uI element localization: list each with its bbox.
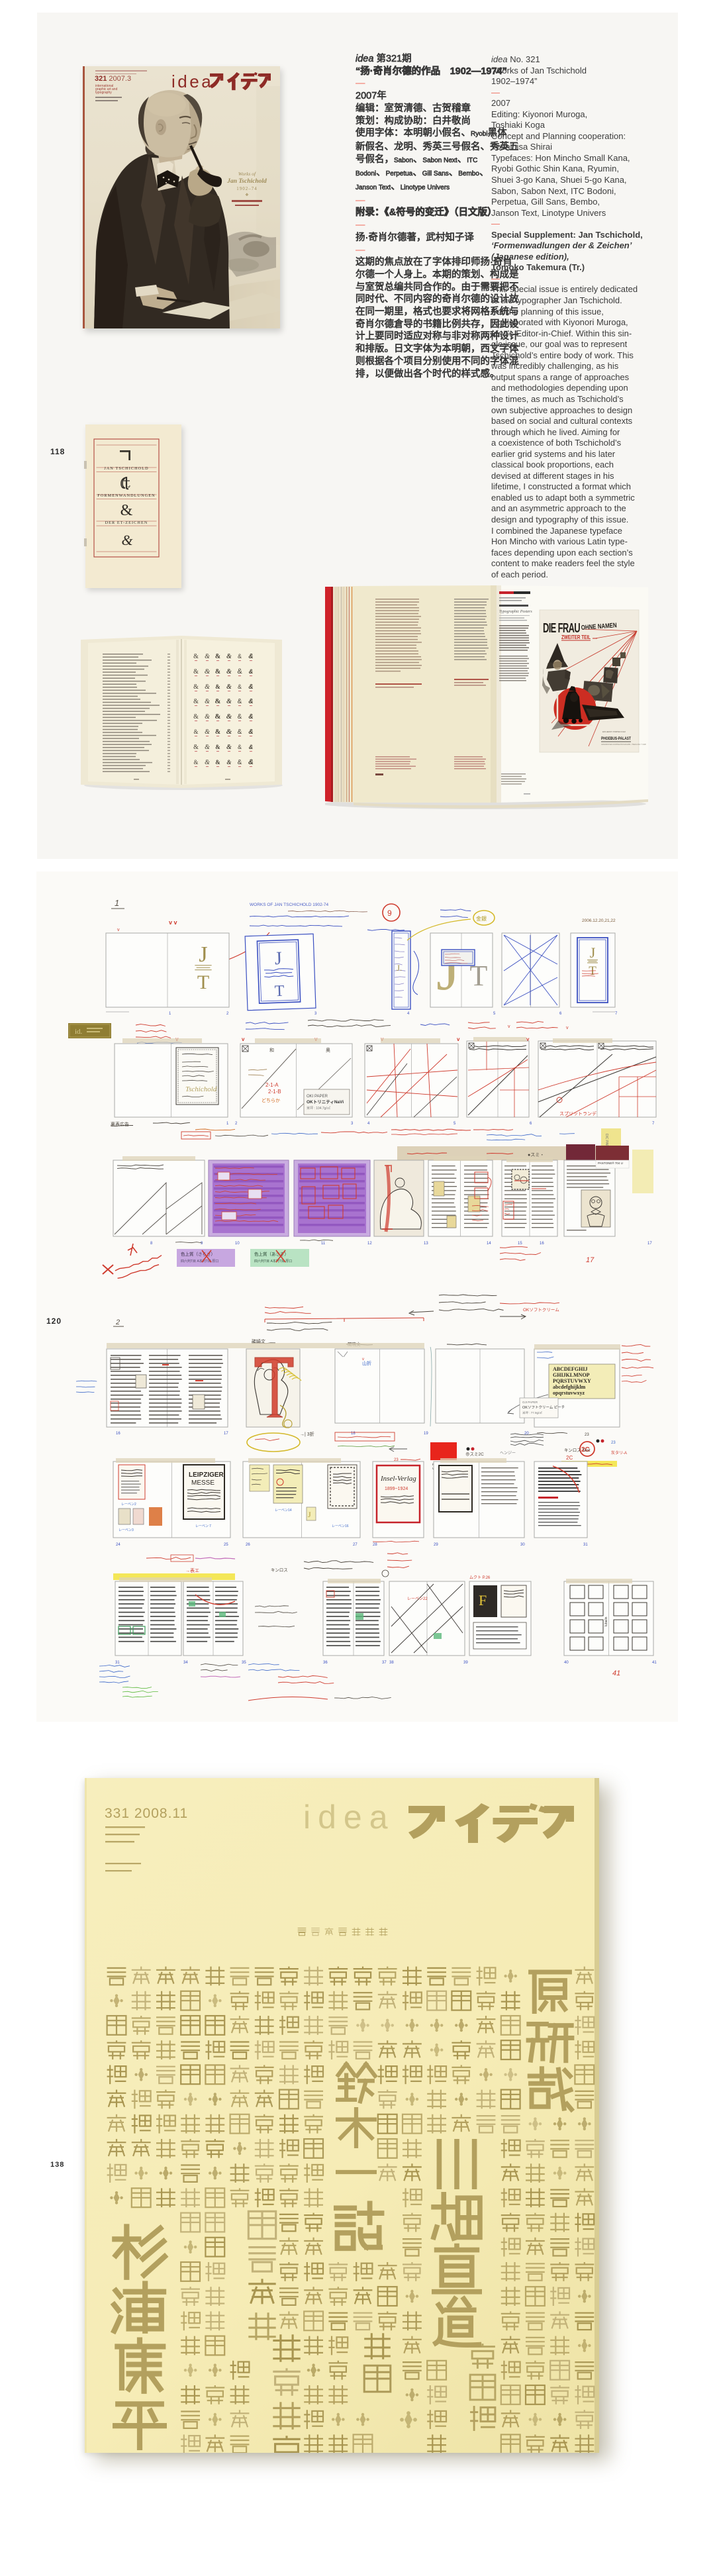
svg-text:3: 3 <box>351 1122 354 1126</box>
svg-text:&: & <box>120 502 133 519</box>
svg-text:17: 17 <box>224 1432 228 1436</box>
svg-text:金銀: 金銀 <box>476 915 487 922</box>
svg-text:2-1-A: 2-1-A <box>265 1082 279 1088</box>
svg-text:v v: v v <box>169 919 177 926</box>
svg-text:&: & <box>193 759 198 766</box>
svg-text:34: 34 <box>183 1661 188 1665</box>
svg-text:&: & <box>248 683 253 691</box>
svg-text:v: v <box>117 928 120 932</box>
svg-text:v: v <box>566 1026 569 1030</box>
svg-text:→| 3折: →| 3折 <box>300 1431 314 1437</box>
svg-text:T: T <box>197 971 209 993</box>
svg-text:5: 5 <box>453 1122 456 1126</box>
svg-text:25: 25 <box>224 1543 228 1547</box>
svg-text:10: 10 <box>235 1242 240 1246</box>
svg-text:&: & <box>238 653 242 660</box>
svg-text:スプリットランデ: スプリットランデ <box>559 1111 596 1116</box>
svg-text:⊕スミ2C: ⊕スミ2C <box>465 1452 484 1457</box>
svg-text:&: & <box>226 744 232 751</box>
svg-text:米坪 : 104.7g/㎡: 米坪 : 104.7g/㎡ <box>307 1106 330 1111</box>
svg-text:J: J <box>274 948 282 969</box>
svg-text:17: 17 <box>586 1256 595 1264</box>
svg-text:&: & <box>193 668 199 675</box>
svg-text:37: 37 <box>382 1661 387 1665</box>
svg-text:23: 23 <box>394 1458 399 1462</box>
svg-text:ZWEITER TEIL: ZWEITER TEIL <box>561 634 591 640</box>
svg-text:&: & <box>249 668 254 675</box>
svg-text:9: 9 <box>387 909 392 918</box>
svg-text:Typographic Posters: Typographic Posters <box>499 610 532 614</box>
svg-text:4: 4 <box>367 1122 370 1126</box>
svg-text:&: & <box>215 653 220 660</box>
svg-text:&: & <box>238 759 242 766</box>
svg-text:GHIJKLMNOP: GHIJKLMNOP <box>553 1372 590 1378</box>
svg-text:&: & <box>226 683 232 691</box>
svg-text:29: 29 <box>434 1543 438 1547</box>
svg-text:40: 40 <box>564 1661 569 1665</box>
svg-text:&: & <box>205 759 210 766</box>
svg-text:レーベン14: レーベン14 <box>275 1509 292 1512</box>
svg-text:17: 17 <box>647 1242 652 1246</box>
svg-text:EIN HENNY PORTEN FILM: EIN HENNY PORTEN FILM <box>602 730 626 733</box>
svg-text:キンロス: キンロス <box>271 1567 288 1573</box>
svg-text:OJI PAPER: OJI PAPER <box>522 1401 538 1404</box>
svg-text:&: & <box>205 744 210 751</box>
svg-text:MESSE: MESSE <box>191 1479 215 1487</box>
svg-text:T: T <box>274 983 285 1001</box>
svg-text:PANTONE® 704 U: PANTONE® 704 U <box>598 1161 623 1165</box>
svg-text:v: v <box>457 1036 460 1042</box>
svg-text:&: & <box>193 744 199 751</box>
svg-text:J: J <box>436 935 460 1003</box>
svg-text:8: 8 <box>150 1242 153 1246</box>
svg-text:LEIPZIGER: LEIPZIGER <box>189 1471 224 1479</box>
svg-text:&: & <box>226 728 232 736</box>
svg-text:OKソフトクリーム ピーチ: OKソフトクリーム ピーチ <box>522 1405 565 1410</box>
svg-text:四六判T目 A本判T目 厚口: 四六判T目 A本判T目 厚口 <box>254 1259 292 1263</box>
svg-text:&: & <box>215 759 220 766</box>
svg-text:2: 2 <box>115 1318 120 1326</box>
svg-text:4: 4 <box>407 1012 410 1016</box>
svg-text:14: 14 <box>487 1242 491 1246</box>
svg-text:&: & <box>193 728 198 735</box>
svg-text:3: 3 <box>314 1012 317 1016</box>
svg-text:&: & <box>205 683 210 691</box>
svg-text:&: & <box>226 759 231 766</box>
svg-text:&: & <box>205 653 210 660</box>
svg-text:どちらか: どちらか <box>262 1098 280 1103</box>
svg-text:31: 31 <box>115 1661 120 1665</box>
svg-text:13: 13 <box>424 1242 428 1246</box>
svg-text:F: F <box>479 1592 487 1609</box>
svg-text:●スミ・: ●スミ・ <box>528 1152 544 1158</box>
svg-text:&: & <box>248 758 254 766</box>
svg-text:v: v <box>508 1024 510 1029</box>
svg-text:39: 39 <box>463 1661 468 1665</box>
svg-text:9: 9 <box>201 1242 203 1246</box>
svg-text:opqrstuvwxyz: opqrstuvwxyz <box>553 1390 585 1396</box>
svg-text:27: 27 <box>353 1543 358 1547</box>
svg-text:7: 7 <box>615 1012 618 1016</box>
svg-text:38: 38 <box>389 1661 394 1665</box>
svg-text:24: 24 <box>116 1543 120 1547</box>
svg-text:J: J <box>308 1510 311 1519</box>
svg-text:米坪 : 77.9g/㎡: 米坪 : 77.9g/㎡ <box>522 1411 542 1415</box>
svg-text:&: & <box>215 683 220 690</box>
svg-text:&: & <box>215 697 220 705</box>
svg-text:→表エ: →表エ <box>185 1567 199 1573</box>
svg-text:GRANDIOSES DOPPELPROGRAMM • TA: GRANDIOSES DOPPELPROGRAMM • TAEGLICH 7 U… <box>601 743 646 746</box>
svg-text:28: 28 <box>373 1543 377 1547</box>
svg-text:30: 30 <box>520 1543 525 1547</box>
svg-text:120: 120 <box>46 1316 62 1326</box>
svg-text:J: J <box>199 942 207 967</box>
svg-text:&: & <box>238 713 242 720</box>
svg-text:35: 35 <box>242 1661 246 1665</box>
svg-text:&: & <box>193 683 199 691</box>
svg-text:&: & <box>248 653 253 660</box>
svg-text:&: & <box>121 532 133 548</box>
svg-text:16: 16 <box>540 1242 544 1246</box>
svg-text:&: & <box>205 728 210 736</box>
svg-text:&: & <box>226 698 232 705</box>
svg-text:&: & <box>205 668 211 675</box>
svg-text:abcdefghijklm: abcdefghijklm <box>553 1384 586 1390</box>
svg-text:23: 23 <box>611 1441 616 1445</box>
svg-text:OKトリニティNaVi: OKトリニティNaVi <box>307 1099 344 1105</box>
svg-text:灰タリ-A: 灰タリ-A <box>611 1450 627 1456</box>
svg-text:41: 41 <box>652 1661 657 1665</box>
svg-text:1: 1 <box>115 898 119 908</box>
svg-text:&: & <box>248 728 253 736</box>
svg-text:レーベン22: レーベン22 <box>407 1597 428 1601</box>
svg-text:&: & <box>205 713 210 720</box>
svg-text:&: & <box>205 698 210 705</box>
svg-text:J: J <box>590 944 596 961</box>
svg-text:&: & <box>248 698 253 705</box>
svg-text:36: 36 <box>323 1661 328 1665</box>
svg-text:&: & <box>248 713 253 720</box>
svg-text:Insel-Verlag: Insel-Verlag <box>380 1475 416 1483</box>
svg-text:キンロス Text: キンロス Text <box>564 1448 591 1453</box>
svg-text:19: 19 <box>424 1432 428 1436</box>
svg-text:&: & <box>226 713 232 720</box>
svg-text:&: & <box>193 713 199 720</box>
svg-text:&: & <box>238 698 242 705</box>
svg-text:PHOEBUS-PALAST: PHOEBUS-PALAST <box>601 736 631 741</box>
svg-text:ABCDEFGHIJ: ABCDEFGHIJ <box>553 1366 587 1372</box>
svg-text:&: & <box>238 683 242 690</box>
svg-text:OKI PAPER: OKI PAPER <box>307 1095 328 1099</box>
svg-text:6: 6 <box>530 1122 532 1126</box>
svg-text:&: & <box>238 728 242 736</box>
svg-text:Tschichold: Tschichold <box>185 1085 217 1093</box>
svg-text:ムクト P.26: ムクト P.26 <box>469 1575 491 1580</box>
svg-text:OKソフトクリーム: OKソフトクリーム <box>523 1307 559 1313</box>
svg-text:id.: id. <box>75 1028 83 1036</box>
svg-text:&: & <box>237 668 242 675</box>
svg-text:&: & <box>215 728 220 736</box>
svg-text:&: & <box>238 744 242 750</box>
svg-text:7: 7 <box>652 1122 655 1126</box>
svg-text:1: 1 <box>226 1122 229 1126</box>
svg-text:奥: 奥 <box>326 1047 330 1053</box>
svg-text:5: 5 <box>493 1012 496 1016</box>
svg-text:ヘンジー: ヘンジー <box>500 1452 516 1456</box>
svg-text:&: & <box>193 653 199 660</box>
svg-text:J.: J. <box>397 963 402 973</box>
svg-text:&: & <box>226 668 232 675</box>
svg-text:四六判T目 A本判T目 厚口: 四六判T目 A本判T目 厚口 <box>181 1259 218 1263</box>
svg-text:1899~1924: 1899~1924 <box>385 1487 408 1491</box>
svg-text:41: 41 <box>612 1669 620 1677</box>
svg-text:1: 1 <box>169 1012 171 1016</box>
svg-text:WORKS OF JAN TSCHICHOLD 1902-7: WORKS OF JAN TSCHICHOLD 1902-74 <box>250 903 328 907</box>
svg-text:レーベン16: レーベン16 <box>332 1524 349 1528</box>
svg-text:2006.12.20,21,22: 2006.12.20,21,22 <box>582 918 616 923</box>
svg-text:15: 15 <box>518 1242 522 1246</box>
svg-text:&: & <box>249 744 254 750</box>
svg-text:31: 31 <box>583 1543 588 1547</box>
svg-text:2C: 2C <box>566 1455 573 1461</box>
svg-text:16: 16 <box>116 1432 120 1436</box>
svg-text:&: & <box>215 668 220 675</box>
svg-text:レーベン3: レーベン3 <box>119 1528 134 1532</box>
svg-text:11: 11 <box>321 1242 326 1246</box>
svg-text:&: & <box>193 698 199 705</box>
svg-text:2: 2 <box>235 1122 238 1126</box>
svg-text:v: v <box>242 1036 245 1042</box>
svg-text:26: 26 <box>246 1543 250 1547</box>
svg-text:2-1-B: 2-1-B <box>268 1089 281 1095</box>
svg-text:レーベン2: レーベン2 <box>121 1503 136 1507</box>
svg-text:和: 和 <box>269 1047 274 1053</box>
svg-text:&: & <box>215 744 220 750</box>
svg-text:6: 6 <box>559 1012 562 1016</box>
svg-text:2: 2 <box>226 1012 229 1016</box>
svg-text:PQRSTUVWXY: PQRSTUVWXY <box>553 1378 591 1384</box>
svg-text:山折: 山折 <box>362 1360 371 1366</box>
svg-text:レーベン７: レーベン７ <box>195 1524 212 1528</box>
svg-text:&: & <box>226 653 232 660</box>
svg-text:&: & <box>215 713 220 720</box>
svg-text:23: 23 <box>585 1433 589 1437</box>
svg-text:12: 12 <box>367 1242 372 1246</box>
svg-text:lubalin: lubalin <box>604 1616 608 1626</box>
